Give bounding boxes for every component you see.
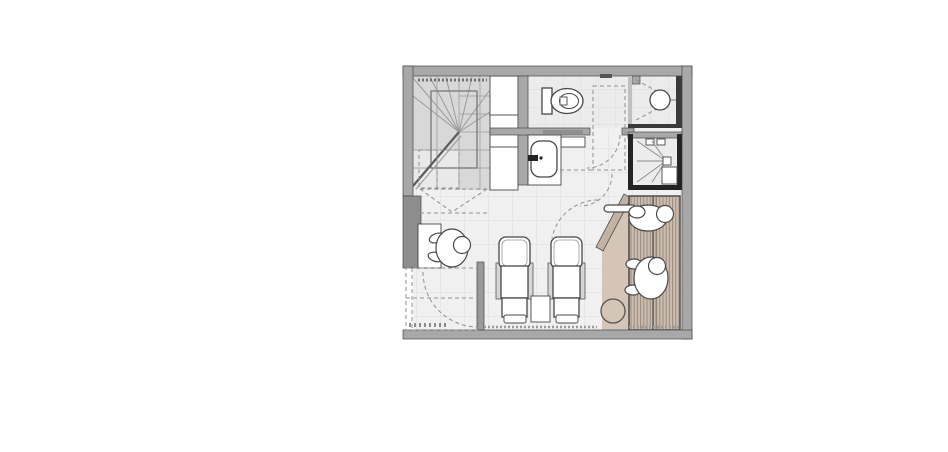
lounger-2	[548, 237, 585, 323]
person-shoulder	[629, 206, 645, 218]
lounger-base	[556, 315, 578, 323]
floor-plan-drawing	[0, 0, 948, 452]
vanity-shelf	[561, 137, 585, 147]
person-head	[649, 258, 666, 275]
tap-icon	[528, 155, 538, 161]
shower-drain-square	[663, 157, 671, 165]
lounger-rail-right	[580, 263, 585, 299]
steam-left-wall	[628, 134, 633, 190]
lounger-rail-left	[548, 263, 553, 299]
steam-bench	[662, 167, 677, 184]
winder-staircase	[413, 76, 490, 190]
steam-right-wall	[677, 134, 682, 190]
person-head	[657, 206, 674, 223]
lounger-seat	[501, 266, 528, 298]
left-wall	[403, 66, 413, 196]
steam-niche-2	[657, 139, 665, 145]
vanity-shelf-bar	[543, 130, 583, 134]
bottom-wall	[403, 330, 692, 339]
lounger-rail-right	[528, 263, 533, 299]
lounger-foot	[554, 298, 579, 317]
sauna-bucket	[601, 299, 625, 323]
lounger-base	[504, 315, 526, 323]
drain-dot-icon	[539, 156, 542, 159]
right-wall	[682, 66, 692, 339]
wc-vent-tick	[600, 74, 612, 78]
toilet-flush	[560, 97, 567, 105]
toilet	[542, 88, 583, 114]
lounger-foot	[502, 298, 527, 317]
steam-bottom-wall	[628, 185, 682, 190]
lounger-seat	[553, 266, 580, 298]
shower-drain-round	[650, 90, 670, 110]
steam-top-wall	[628, 132, 682, 138]
top-wall	[403, 66, 692, 76]
lounger-1	[496, 237, 533, 323]
shower-bottom-wall	[628, 124, 682, 128]
lounger-rail-left	[496, 263, 501, 299]
person-head	[454, 237, 471, 254]
shower-right-wall	[676, 76, 682, 128]
side-table	[531, 296, 550, 322]
floor-plan-page	[0, 0, 948, 452]
wc-shower-partition	[628, 76, 632, 128]
